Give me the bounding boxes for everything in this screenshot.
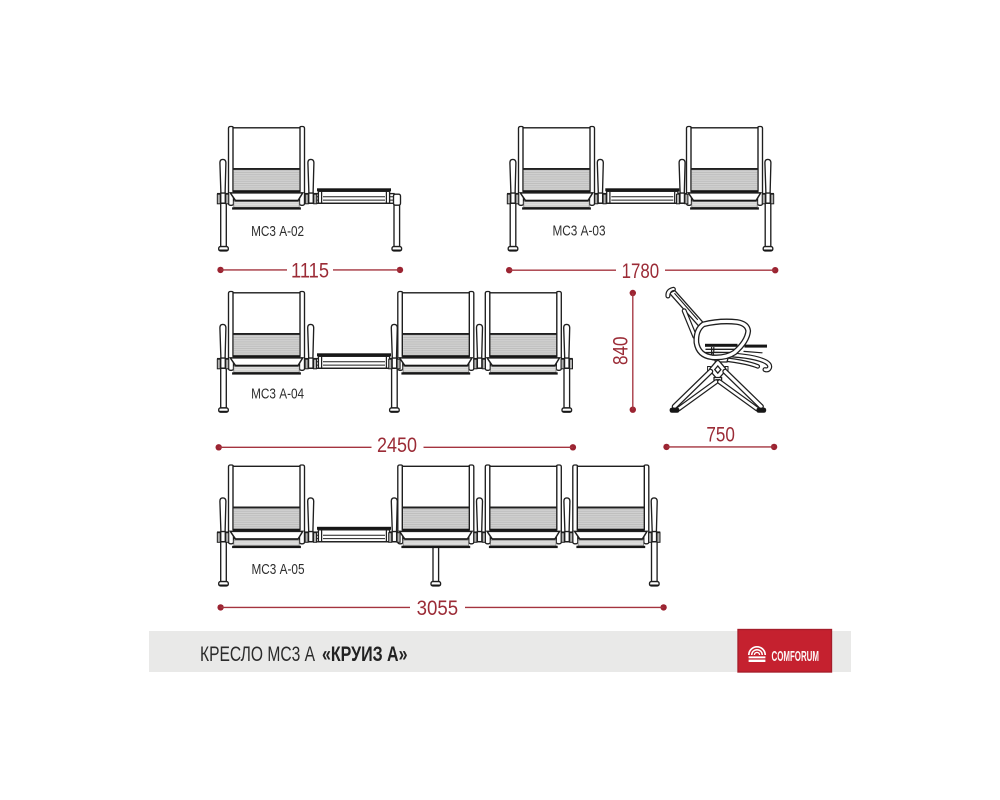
svg-text:1780: 1780 bbox=[622, 259, 660, 283]
svg-text:840: 840 bbox=[609, 336, 633, 365]
svg-text:1115: 1115 bbox=[291, 258, 329, 282]
svg-text:2450: 2450 bbox=[377, 433, 417, 457]
svg-text:МС3 А-02: МС3 А-02 bbox=[251, 224, 304, 240]
svg-text:МС3 А-05: МС3 А-05 bbox=[252, 562, 305, 578]
svg-text:3055: 3055 bbox=[417, 596, 459, 620]
svg-text:КРЕСЛО МС3 А: КРЕСЛО МС3 А bbox=[200, 643, 316, 666]
svg-text:«КРУИЗ А»: «КРУИЗ А» bbox=[322, 643, 408, 666]
svg-text:МС3 А-04: МС3 А-04 bbox=[251, 387, 304, 403]
svg-text:750: 750 bbox=[706, 423, 735, 447]
svg-text:МС3 А-03: МС3 А-03 bbox=[553, 224, 606, 240]
svg-text:COMFORUM: COMFORUM bbox=[772, 649, 820, 665]
